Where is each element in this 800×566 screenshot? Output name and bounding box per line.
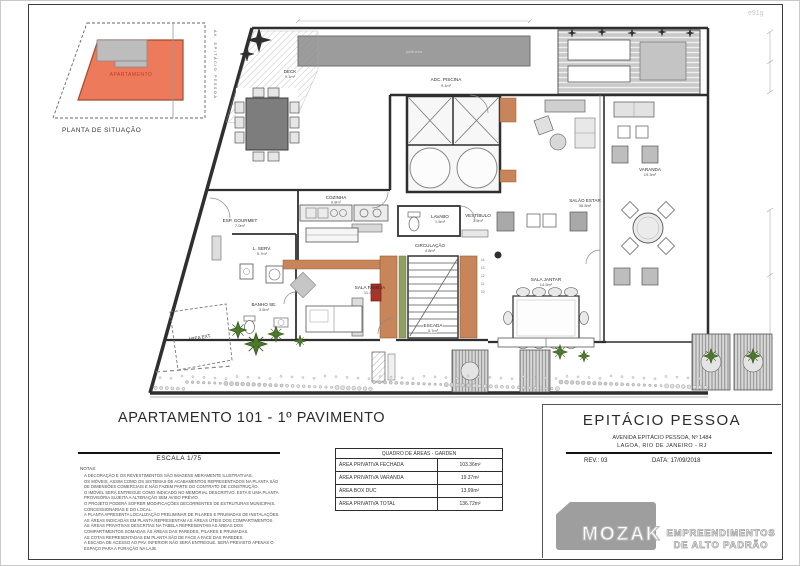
pouf [550,134,566,150]
dining-room: SALA JANTAR 14.5m² [498,277,594,349]
project-address-line1: AVENIDA EPITÁCIO PESSOA, Nº 1484 [542,435,782,441]
jardineira-label: jardineira [405,49,423,54]
main-floor-plan: jardineira ADC. PISCINA 9.1m² DECK 9.1m² [150,19,773,397]
svg-text:19.3m²: 19.3m² [644,172,657,177]
lavabo-room: LAVABO 1.5m² [398,206,460,236]
company-tagline-1: EMPREENDIMENTOS [660,528,782,539]
dark-armchair [497,212,514,231]
svg-text:1.5m²: 1.5m² [435,219,446,224]
table-row: ÁREA PRIVATIVA VARANDA 19.37m² [336,472,503,485]
title-block-top-border [542,404,781,405]
company-tagline-2: DE ALTO PADRÃO [660,540,782,551]
svg-text:9.1m²: 9.1m² [441,83,452,88]
svg-text:3.5m²: 3.5m² [259,307,270,312]
notes-title: NOTAS: [80,466,96,471]
column [495,252,502,259]
wood-floor-strip [283,260,383,269]
area-table: QUADRO DE ÁREAS - GARDEN ÁREA PRIVATIVA … [335,448,503,511]
diamond-table [290,272,315,297]
scale-divider [78,452,280,454]
laundry-room: L. SERV. 5.7m² [240,246,283,283]
varanda: VARANDA 19.3m² [612,102,674,285]
project-address-line2: LAGOA, RIO DE JANEIRO - RJ [542,443,782,449]
svg-text:5.7m²: 5.7m² [257,251,268,256]
round-shaft [410,148,450,188]
family-room: SALA FAMÍLIA 11.4m² [306,284,386,336]
elevator-core [407,96,516,192]
svg-text:9.1m²: 9.1m² [285,74,296,79]
service-bathroom: BANHO SE. 3.5m² [244,302,288,334]
tv-rack [545,100,585,112]
top-right-deck [558,28,700,94]
site-plan-inset: APARTAMENTO AV. EPITÁCIO PESSOA PLANTA D… [53,23,217,134]
stair-step-numbers: 14 13 12 11 10 [481,258,485,294]
stair-wood-rail-right [460,256,477,338]
svg-text:9.8m²: 9.8m² [331,200,342,205]
site-street-label: AV. EPITÁCIO PESSOA [213,30,217,99]
site-plan-caption: PLANTA DE SITUAÇÃO [62,125,141,134]
scale-label: ESCALA 1/75 [78,455,280,462]
svg-text:12: 12 [481,274,485,278]
staircase: 14 13 12 11 10 ESCADA 5.7m² [371,256,485,338]
svg-text:11: 11 [481,282,485,286]
gourmet-room: ESP. GOURMET 7.0m² [212,218,258,260]
svg-text:4.8m²: 4.8m² [425,248,436,253]
svg-text:10: 10 [481,290,485,294]
area-table-header: QUADRO DE ÁREAS - GARDEN [336,449,503,459]
svg-text:13: 13 [481,266,485,270]
table-row: ÁREA PRIVATIVA FECHADA 103.36m² [336,459,503,472]
dining-table [513,296,579,340]
date-label: DATA: 17/09/2018 [652,458,700,464]
title-block-rule [566,452,772,454]
svg-text:14: 14 [481,258,485,262]
varanda-round-table [633,213,663,243]
project-title: EPITÁCIO PESSOA [542,412,782,429]
table-row: ÁREA BOX DUC 13.99m² [336,485,503,498]
svg-text:11.4m²: 11.4m² [364,290,377,295]
stair-wood-rail-left [380,256,397,338]
notes-block: A DECORAÇÃO E OS REVESTIMENTOS SÃO IMAGE… [84,473,334,551]
site-unit-label: APARTAMENTO [110,72,153,78]
svg-text:14.5m²: 14.5m² [540,282,553,287]
drawing-title: APARTAMENTO 101 - 1º PAVIMENTO [118,410,385,426]
stone-row [154,375,707,391]
stair-planter-strip [399,256,406,338]
company-logo-text: MOZAK [582,524,662,546]
site-gray-block [97,40,147,61]
console-table [462,230,488,237]
wood-threshold [500,98,516,122]
ottoman [527,214,540,227]
kitchen: COZINHA 9.8m² [300,195,388,242]
armchair [534,116,553,135]
jardineira-bar: jardineira [298,36,530,66]
revision-label: REV.: 03 [584,458,607,464]
svg-text:7.0m²: 7.0m² [235,223,246,228]
svg-text:5.7m²: 5.7m² [428,328,439,333]
room-label-adc-piscina: ADC. PISCINA [431,77,463,82]
garden-bench [372,352,385,382]
svg-text:36.8m²: 36.8m² [579,203,592,208]
table-row: ÁREA PRIVATIVA TOTAL 136.72m² [336,498,503,511]
